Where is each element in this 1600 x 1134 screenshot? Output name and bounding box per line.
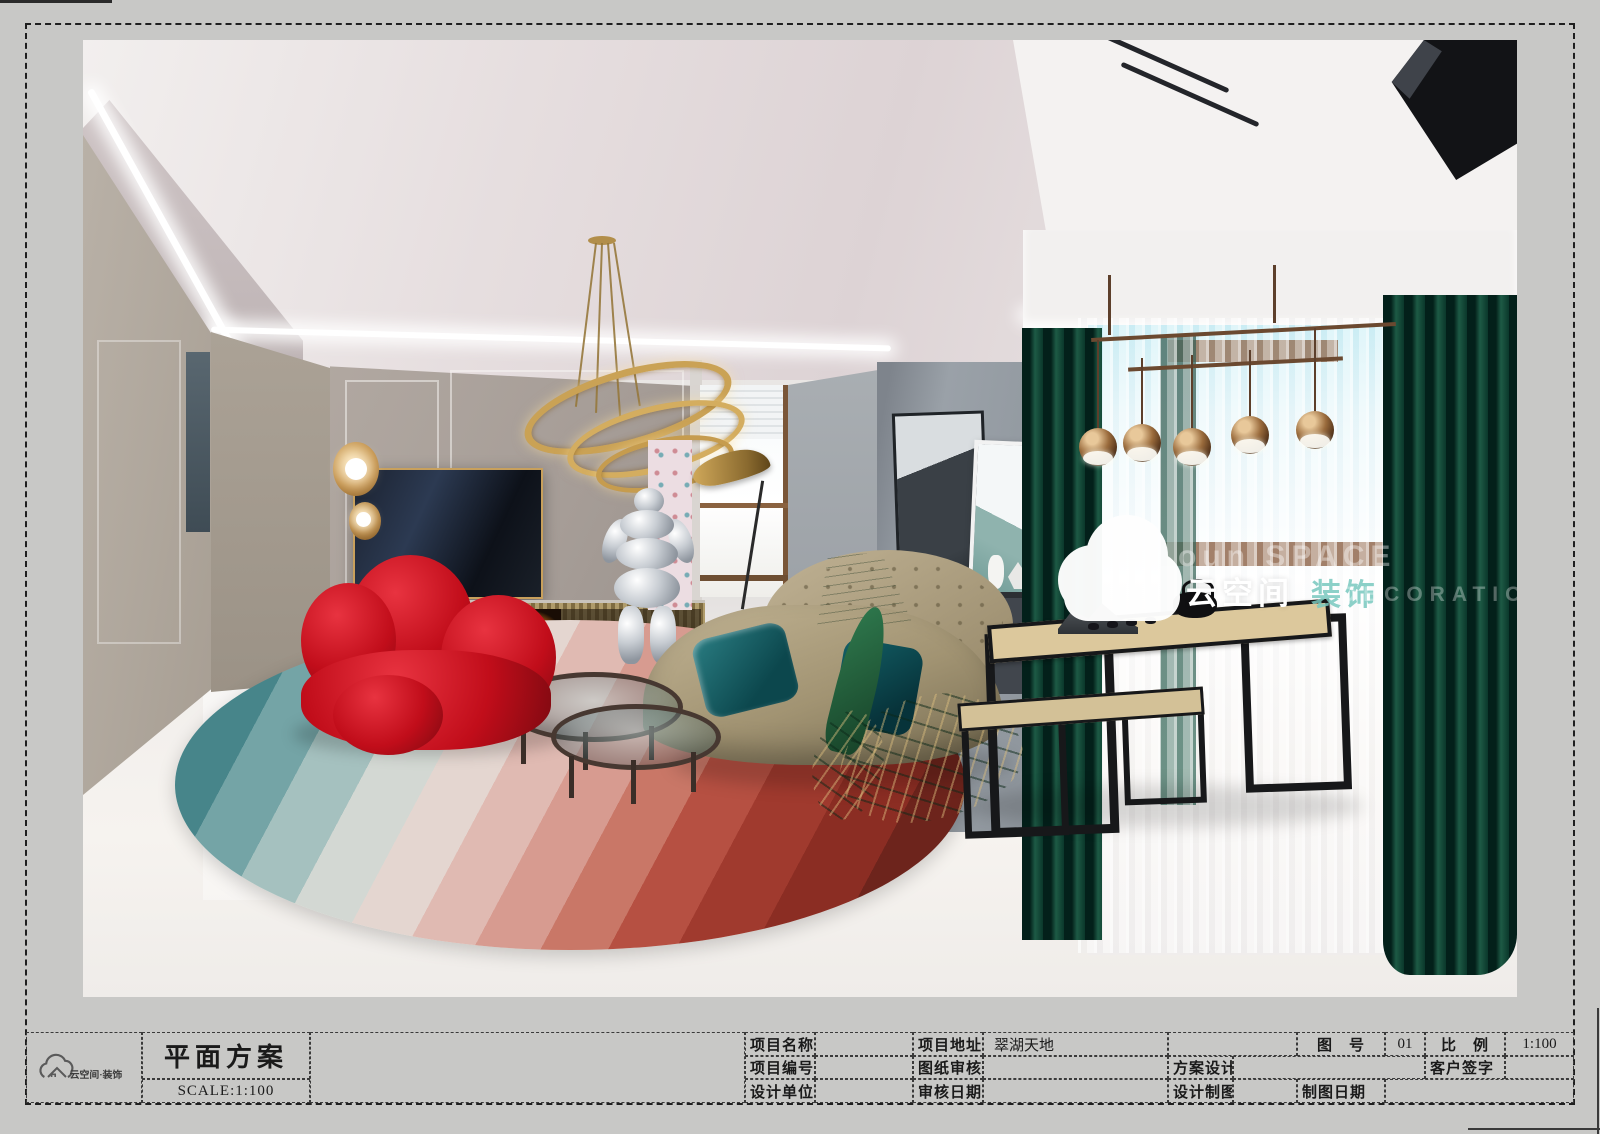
scale-note: SCALE:1:100 bbox=[142, 1079, 310, 1103]
table-leg bbox=[691, 752, 696, 792]
scale-note-text: SCALE:1:100 bbox=[178, 1083, 275, 1100]
drawing-review-label: 图纸审核 bbox=[913, 1056, 983, 1079]
design-unit-value bbox=[815, 1079, 913, 1103]
empty-cell bbox=[1385, 1079, 1574, 1103]
table-leg bbox=[569, 756, 574, 798]
empty-cell bbox=[1168, 1032, 1297, 1056]
edge-line-right bbox=[1597, 1008, 1599, 1134]
client-signature-label: 客户签字 bbox=[1425, 1056, 1505, 1079]
empty-cell bbox=[310, 1032, 745, 1103]
design-drafting-label: 设计制图 bbox=[1168, 1079, 1233, 1103]
watermark-cloud-icon bbox=[1058, 515, 1188, 627]
watermark-ghost-text: DECORATION bbox=[1341, 583, 1517, 607]
pendant-globe bbox=[1173, 428, 1211, 466]
edge-line-top bbox=[0, 0, 112, 3]
empty-cell bbox=[1233, 1079, 1297, 1103]
green-curtain-right bbox=[1383, 295, 1517, 975]
edge-line-bottom bbox=[1468, 1128, 1600, 1130]
pendant-globe bbox=[1231, 416, 1269, 454]
pendant-stem bbox=[1097, 340, 1099, 430]
pendant-rod bbox=[1108, 275, 1111, 335]
wall-molding bbox=[97, 340, 181, 644]
pendant-rod bbox=[1273, 265, 1276, 323]
project-no-value bbox=[815, 1056, 913, 1079]
project-address-label: 项目地址 bbox=[913, 1032, 983, 1056]
pendant-globe bbox=[1296, 411, 1334, 449]
empty-cell bbox=[1233, 1056, 1425, 1079]
pendant-globe bbox=[1079, 428, 1117, 466]
wall-slot bbox=[186, 352, 210, 532]
svg-text:云空间·装饰: 云空间·装饰 bbox=[70, 1067, 123, 1080]
pendant-stem bbox=[1141, 358, 1143, 426]
cloud-house-logo-icon: 云空间·装饰 bbox=[30, 1048, 138, 1088]
title-block: 云空间·装饰 平面方案 SCALE:1:100 项目名称 项目地址 翠湖天地 图… bbox=[26, 1032, 1574, 1103]
company-logo: 云空间·装饰 bbox=[26, 1032, 142, 1103]
table-leg bbox=[631, 760, 636, 804]
interior-render: oun SPACE 云空间 装饰 DECORATION bbox=[83, 40, 1517, 997]
figure-no-label: 图 号 bbox=[1297, 1032, 1385, 1056]
pendant-stem bbox=[1191, 355, 1193, 430]
pendant-stem bbox=[1314, 328, 1316, 413]
pendant-globe bbox=[1123, 424, 1161, 462]
sconce-bulb bbox=[356, 512, 371, 527]
window-frame bbox=[700, 503, 788, 508]
review-date-label: 审核日期 bbox=[913, 1079, 983, 1103]
scale-label: 比 例 bbox=[1425, 1032, 1505, 1056]
pendant-stem bbox=[1249, 350, 1251, 418]
review-date-value bbox=[983, 1079, 1168, 1103]
scale-value: 1:100 bbox=[1505, 1032, 1574, 1056]
client-signature-value bbox=[1505, 1056, 1574, 1079]
figure-no-value: 01 bbox=[1385, 1032, 1425, 1056]
project-no-label: 项目编号 bbox=[745, 1056, 815, 1079]
project-name-label: 项目名称 bbox=[745, 1032, 815, 1056]
drawing-sheet: oun SPACE 云空间 装饰 DECORATION 云空间·装饰 平面方案 … bbox=[0, 0, 1600, 1134]
watermark-brand: 云空间 bbox=[1186, 568, 1294, 613]
drafting-date-label: 制图日期 bbox=[1297, 1079, 1385, 1103]
red-lounge-chair bbox=[273, 555, 563, 755]
design-unit-label: 设计单位 bbox=[745, 1079, 815, 1103]
drawing-title: 平面方案 bbox=[142, 1032, 310, 1079]
project-address-value: 翠湖天地 bbox=[983, 1032, 1168, 1056]
project-name-value bbox=[815, 1032, 913, 1056]
drawing-review-value bbox=[983, 1056, 1168, 1079]
scheme-design-label: 方案设计 bbox=[1168, 1056, 1233, 1079]
drawing-title-text: 平面方案 bbox=[164, 1037, 288, 1074]
sconce-bulb bbox=[345, 458, 367, 480]
